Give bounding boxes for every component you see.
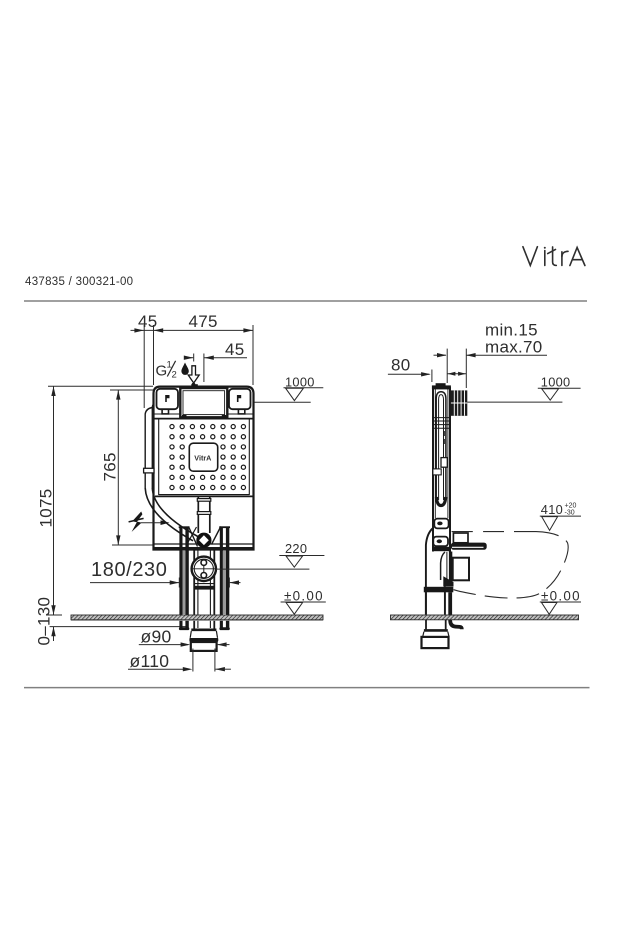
svg-text:1075: 1075 [37, 488, 56, 527]
svg-text:max.70: max.70 [485, 337, 543, 356]
svg-text:180/230: 180/230 [91, 559, 168, 581]
svg-text:45: 45 [225, 340, 245, 359]
svg-text:80: 80 [391, 355, 411, 374]
svg-text:±0.00: ±0.00 [284, 588, 324, 603]
svg-text:1000: 1000 [285, 374, 315, 389]
svg-text:0–130: 0–130 [35, 597, 54, 646]
svg-text:410: 410 [541, 502, 563, 517]
svg-text:±0.00: ±0.00 [541, 588, 581, 603]
svg-text:ø110: ø110 [130, 651, 170, 671]
svg-text:765: 765 [101, 452, 120, 481]
svg-text:220: 220 [285, 541, 307, 556]
svg-text:VitrA: VitrA [194, 454, 211, 463]
svg-text:ø90: ø90 [141, 626, 172, 646]
svg-text:1000: 1000 [541, 375, 571, 390]
svg-text:2: 2 [172, 370, 177, 381]
svg-text:45: 45 [138, 312, 158, 331]
svg-text:437835 / 300321-00: 437835 / 300321-00 [25, 276, 133, 288]
svg-text:475: 475 [189, 312, 218, 331]
svg-text:-30: -30 [565, 509, 575, 516]
svg-text:G: G [156, 363, 168, 380]
